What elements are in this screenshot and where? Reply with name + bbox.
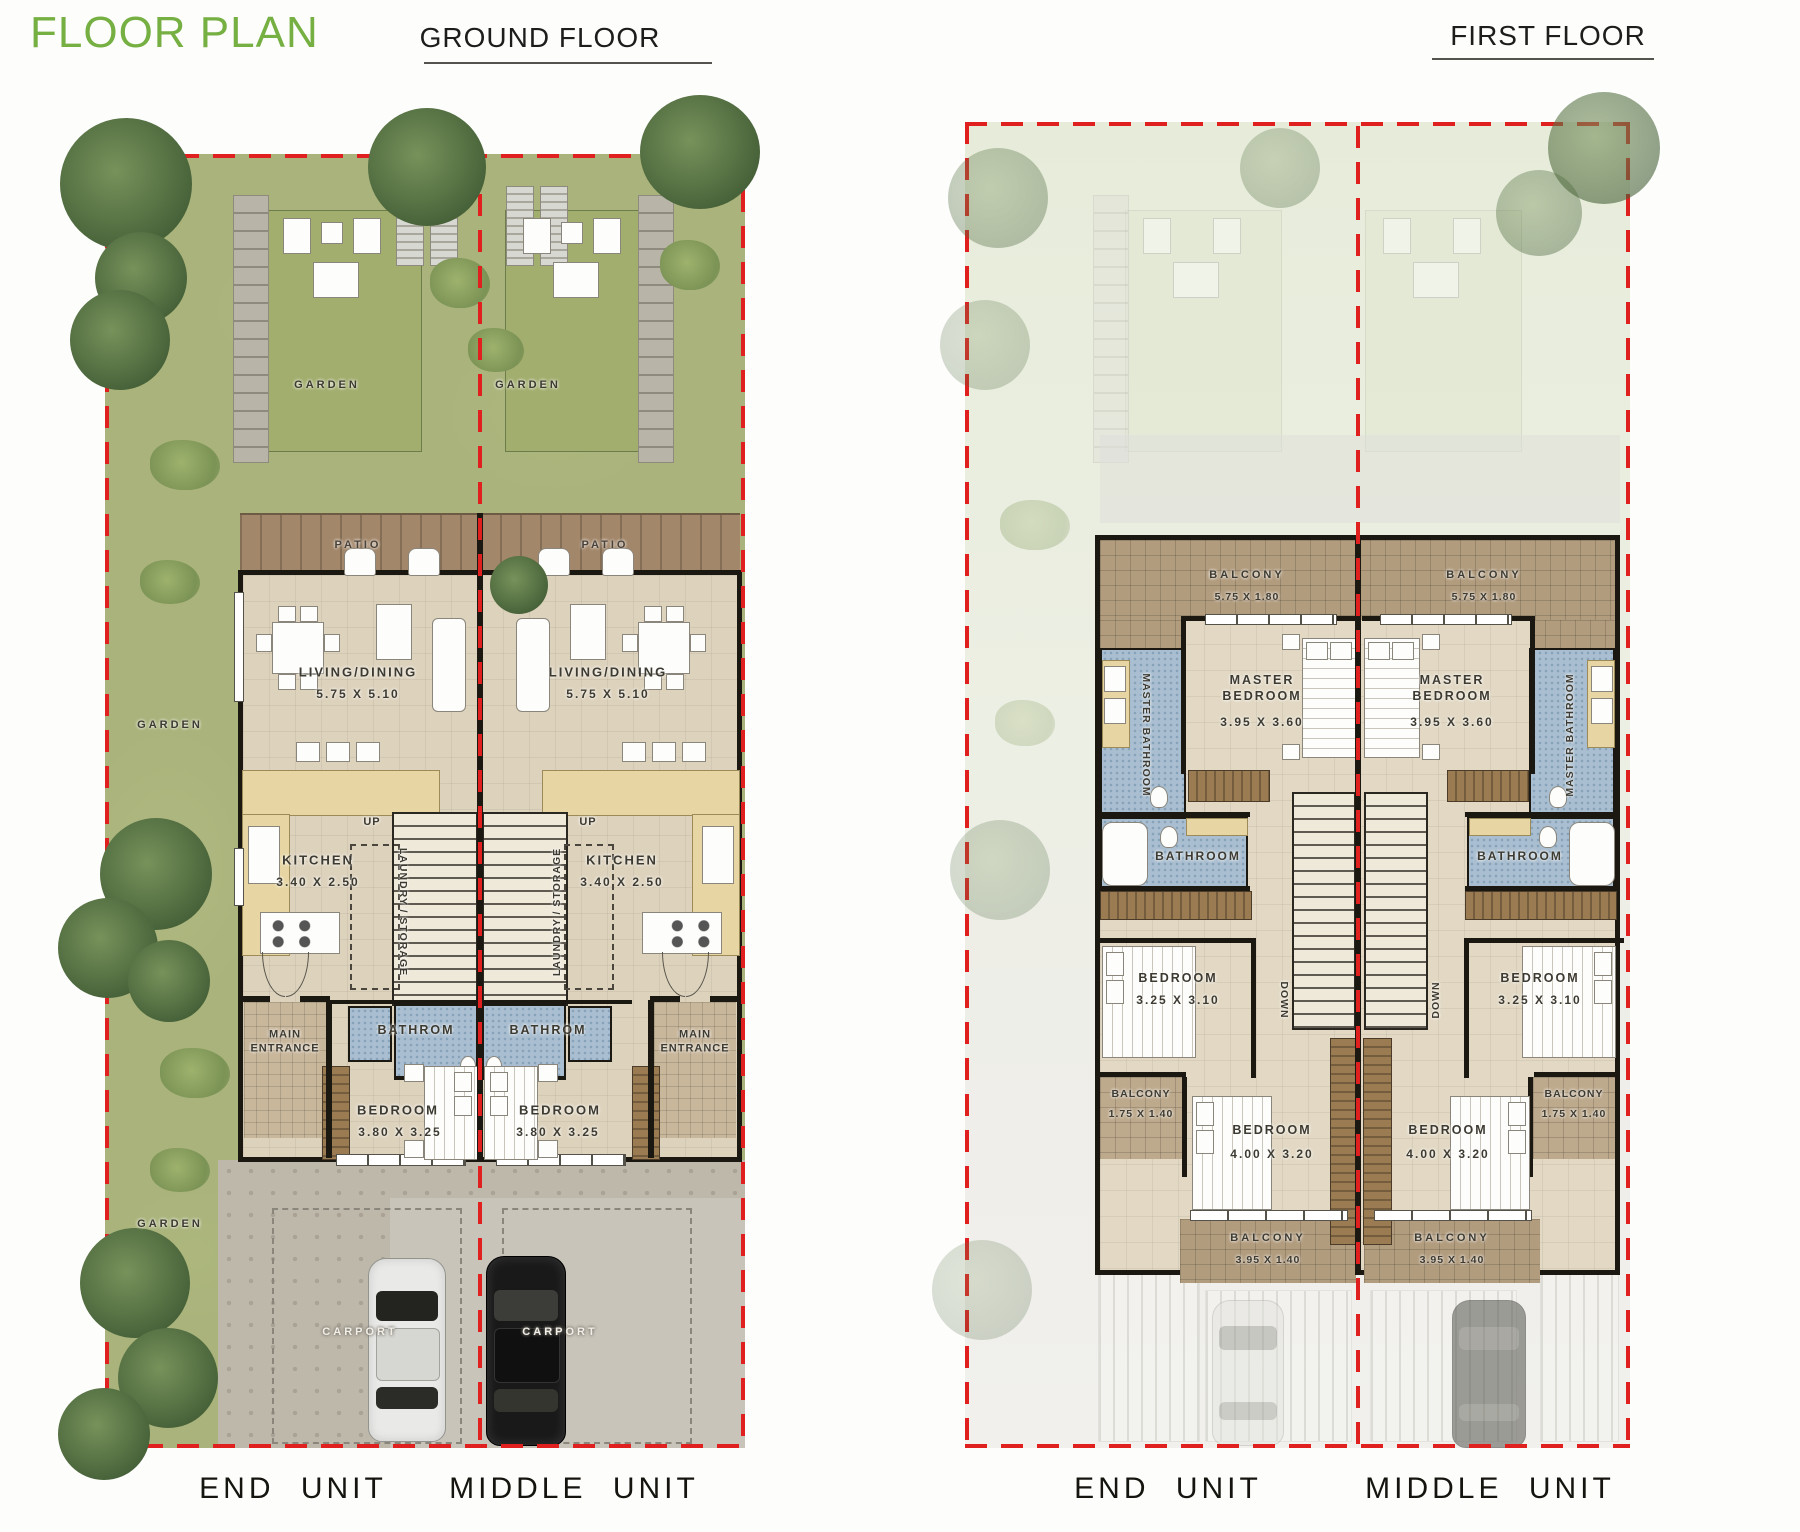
bush xyxy=(150,440,220,490)
kitchen-counter xyxy=(242,770,440,816)
ghost-bush xyxy=(1000,500,1070,550)
plot-border xyxy=(105,1444,745,1448)
window xyxy=(234,592,244,702)
room-dim-bedroom: 3.25 X 3.10 xyxy=(1136,993,1219,1007)
ghost-furniture xyxy=(1413,262,1459,298)
garden-label: GARDEN xyxy=(137,1218,203,1230)
room-dim-living: 5.75 X 5.10 xyxy=(566,687,649,701)
room-dim-side-balcony: 1.75 X 1.40 xyxy=(1542,1108,1607,1120)
ghost-furniture xyxy=(1213,218,1241,254)
wall xyxy=(1530,616,1535,774)
room-label-balcony: BALCONY xyxy=(1446,569,1521,581)
nightstand xyxy=(1282,634,1300,650)
lounge-chair xyxy=(283,218,311,254)
garden-label: GARDEN xyxy=(294,379,360,391)
pillow xyxy=(1368,642,1390,660)
room-dim-master-bedroom: 3.95 X 3.60 xyxy=(1220,715,1303,729)
tree xyxy=(128,940,210,1022)
ghost-walkway xyxy=(1093,195,1129,463)
carport-label: CARPORT xyxy=(522,1326,597,1338)
pillow xyxy=(1106,980,1124,1004)
pillow xyxy=(1196,1130,1214,1154)
bush xyxy=(468,328,524,372)
tree xyxy=(60,118,192,250)
nightstand xyxy=(404,1140,424,1158)
wall xyxy=(1096,938,1256,943)
room-label-master-bathroom: MASTER BATHROOM xyxy=(1564,673,1576,796)
wall xyxy=(482,1000,632,1004)
wall xyxy=(1251,938,1256,1078)
wall xyxy=(1182,1077,1187,1177)
dining-chair xyxy=(644,606,662,622)
tree xyxy=(58,1388,150,1480)
dining-chair xyxy=(622,634,638,652)
garden-walkway xyxy=(233,195,269,463)
plot-border xyxy=(741,154,745,1448)
ghost-patio xyxy=(1100,435,1620,523)
unit-label-end: END UNIT xyxy=(1074,1472,1262,1506)
wall xyxy=(300,996,330,1002)
pillow xyxy=(1330,642,1352,660)
toilet xyxy=(1150,786,1168,808)
room-dim-bedroom: 4.00 X 3.20 xyxy=(1406,1147,1489,1161)
room-label-master-bedroom: MASTER BEDROOM xyxy=(1397,672,1507,705)
plot-border xyxy=(965,122,1630,126)
room-label-bottom-balcony: BALCONY xyxy=(1230,1232,1305,1244)
room-dim-bedroom: 3.80 X 3.25 xyxy=(516,1125,599,1139)
wardrobe xyxy=(1447,770,1529,802)
room-label-bathroom: BATHROM xyxy=(510,1023,587,1037)
pillow xyxy=(1306,642,1328,660)
dining-chair xyxy=(278,606,296,622)
wardrobe xyxy=(1100,891,1252,920)
bar-stool xyxy=(296,742,320,762)
pillow xyxy=(454,1096,472,1116)
wall xyxy=(1464,938,1624,943)
carport-label: CARPORT xyxy=(322,1326,397,1338)
wall xyxy=(710,996,740,1002)
unit-label-middle: MIDDLE UNIT xyxy=(1365,1472,1615,1506)
room-label-bedroom: BEDROOM xyxy=(1232,1123,1311,1137)
wall xyxy=(1096,1072,1186,1077)
ghost-car-dark xyxy=(1452,1300,1526,1448)
wall xyxy=(648,1000,654,1158)
wall xyxy=(240,996,270,1002)
room-dim-kitchen: 3.40 X 2.50 xyxy=(276,875,359,889)
room-label-bedroom: BEDROOM xyxy=(519,1103,601,1118)
vanity xyxy=(1469,818,1531,836)
room-dim-living: 5.75 X 5.10 xyxy=(316,687,399,701)
pillow xyxy=(1508,1102,1526,1126)
nightstand xyxy=(1422,634,1440,650)
dining-chair xyxy=(666,674,684,690)
party-line-red xyxy=(1356,126,1360,1444)
side-table xyxy=(321,222,343,244)
ghost-tree xyxy=(948,148,1048,248)
wall xyxy=(1534,1072,1620,1077)
wardrobe xyxy=(1188,770,1270,802)
entrance-tile xyxy=(244,1002,326,1138)
ghost-tree xyxy=(950,820,1050,920)
room-label-entrance: MAIN ENTRANCE xyxy=(243,1028,327,1057)
toilet xyxy=(1539,826,1557,848)
wall xyxy=(1096,886,1250,891)
armchair xyxy=(344,548,376,576)
bush xyxy=(660,240,720,290)
first-floor-underline xyxy=(1432,58,1654,60)
shrub xyxy=(490,556,548,614)
tree xyxy=(368,108,486,226)
staircase-down xyxy=(1292,792,1356,1030)
garden-table xyxy=(553,262,599,298)
car-white xyxy=(368,1258,446,1442)
sink xyxy=(1104,698,1126,724)
wardrobe xyxy=(1465,891,1617,920)
room-label-bottom-balcony: BALCONY xyxy=(1414,1232,1489,1244)
kitchen-counter xyxy=(542,770,740,816)
ghost-furniture xyxy=(1143,218,1171,254)
side-table xyxy=(561,222,583,244)
laundry-label: LAUNDRY / STORAGE xyxy=(551,848,563,976)
dining-chair xyxy=(324,634,340,652)
nightstand xyxy=(538,1064,558,1082)
lounge-chair xyxy=(593,218,621,254)
ghost-tree xyxy=(940,300,1030,390)
armchair xyxy=(408,548,440,576)
unit-label-middle: MIDDLE UNIT xyxy=(449,1472,699,1506)
room-label-living: LIVING/DINING xyxy=(549,665,667,680)
nightstand xyxy=(404,1064,424,1082)
room-label-patio: PATIO xyxy=(335,539,382,551)
dining-chair xyxy=(300,606,318,622)
room-dim-kitchen: 3.40 X 2.50 xyxy=(580,875,663,889)
lounge-chair xyxy=(353,218,381,254)
wall xyxy=(326,1000,332,1158)
window xyxy=(234,848,244,906)
first-floor-heading: FIRST FLOOR xyxy=(1450,20,1646,52)
plot-border xyxy=(1626,122,1630,1448)
ground-floor-heading: GROUND FLOOR xyxy=(420,22,661,54)
room-dim-bedroom: 4.00 X 3.20 xyxy=(1230,1147,1313,1161)
room-label-kitchen: KITCHEN xyxy=(282,853,354,868)
window xyxy=(1190,1210,1348,1221)
ghost-furniture xyxy=(1453,218,1481,254)
room-dim-bedroom: 3.25 X 3.10 xyxy=(1498,993,1581,1007)
bar-stool xyxy=(622,742,646,762)
room-label-balcony: BALCONY xyxy=(1209,569,1284,581)
sofa xyxy=(516,618,550,712)
dining-chair xyxy=(690,634,706,652)
room-label-bedroom: BEDROOM xyxy=(1138,971,1217,985)
pillow xyxy=(490,1072,508,1092)
stairs-down-label: DOWN xyxy=(1278,981,1290,1018)
sink xyxy=(1591,698,1613,724)
bar-stool xyxy=(682,742,706,762)
room-label-patio: PATIO xyxy=(582,539,629,551)
plot-border xyxy=(965,1444,1630,1448)
pillow xyxy=(1196,1102,1214,1126)
ghost-tree xyxy=(1496,170,1582,256)
room-label-living: LIVING/DINING xyxy=(299,665,417,680)
room-label-bedroom: BEDROOM xyxy=(1408,1123,1487,1137)
room-label-side-balcony: BALCONY xyxy=(1112,1088,1171,1100)
laundry-storage-zone xyxy=(350,844,400,990)
pillow xyxy=(454,1072,472,1092)
stairs-up-label: UP xyxy=(579,816,596,828)
room-label-master-bathroom: MASTER BATHROOM xyxy=(1140,673,1152,796)
room-label-bedroom: BEDROOM xyxy=(1500,971,1579,985)
laundry-label: LAUNDRY / STORAGE xyxy=(397,848,409,976)
wall xyxy=(330,1000,478,1004)
window xyxy=(1374,1210,1532,1221)
lounge-chair xyxy=(523,218,551,254)
garden-table xyxy=(313,262,359,298)
pillow xyxy=(1594,980,1612,1004)
garden-label: GARDEN xyxy=(137,719,203,731)
room-label-bathroom: BATHROOM xyxy=(1477,849,1563,863)
stairs-down-label: DOWN xyxy=(1430,981,1442,1018)
tree xyxy=(70,290,170,390)
bush xyxy=(140,560,200,604)
dining-chair xyxy=(278,674,296,690)
kitchen-sink xyxy=(702,826,734,884)
wall xyxy=(1465,886,1619,891)
bathtub xyxy=(1102,822,1148,886)
room-label-entrance: MAIN ENTRANCE xyxy=(653,1028,737,1057)
nightstand xyxy=(1282,744,1300,760)
nightstand xyxy=(538,1140,558,1158)
room-dim-bottom-balcony: 3.95 X 1.40 xyxy=(1236,1254,1301,1266)
tree xyxy=(80,1228,190,1338)
garden-label: GARDEN xyxy=(495,379,561,391)
vanity xyxy=(1186,818,1248,836)
room-label-bathroom: BATHROOM xyxy=(1155,849,1241,863)
room-dim-bedroom: 3.80 X 3.25 xyxy=(358,1125,441,1139)
bathtub xyxy=(1569,822,1615,886)
coffee-table xyxy=(570,604,606,660)
car-black xyxy=(486,1256,566,1446)
room-label-master-bedroom: MASTER BEDROOM xyxy=(1207,672,1317,705)
toilet xyxy=(1160,826,1178,848)
ghost-car-white xyxy=(1212,1300,1284,1446)
window xyxy=(1205,614,1337,625)
tree xyxy=(640,95,760,209)
room-dim-balcony: 5.75 X 1.80 xyxy=(1452,591,1517,603)
nightstand xyxy=(1422,744,1440,760)
ghost-furniture xyxy=(1383,218,1411,254)
stairs-up-label: UP xyxy=(363,816,380,828)
armchair xyxy=(602,548,634,576)
pillow xyxy=(490,1096,508,1116)
entrance-tile xyxy=(654,1002,736,1138)
ghost-furniture xyxy=(1173,262,1219,298)
pillow xyxy=(1594,952,1612,976)
room-dim-bottom-balcony: 3.95 X 1.40 xyxy=(1420,1254,1485,1266)
garden-walkway xyxy=(638,195,674,463)
room-dim-balcony: 5.75 X 1.80 xyxy=(1215,591,1280,603)
room-label-bathroom: BATHROM xyxy=(378,1023,455,1037)
coffee-table xyxy=(376,604,412,660)
bush xyxy=(160,1048,230,1098)
pillow xyxy=(1106,952,1124,976)
floor-plan-sheet: FLOOR PLAN GROUND FLOOR FIRST FLOOR xyxy=(0,0,1800,1532)
sink xyxy=(1104,666,1126,692)
wall xyxy=(650,996,680,1002)
stove xyxy=(260,912,340,954)
wall xyxy=(1096,812,1250,817)
room-label-kitchen: KITCHEN xyxy=(586,853,658,868)
pillow xyxy=(1392,642,1414,660)
dining-chair xyxy=(666,606,684,622)
kitchen-sink xyxy=(248,826,280,884)
room-label-bedroom: BEDROOM xyxy=(357,1103,439,1118)
bar-stool xyxy=(326,742,350,762)
bush xyxy=(150,1148,210,1192)
pillow xyxy=(1508,1130,1526,1154)
wardrobe xyxy=(632,1066,660,1160)
patio-deck xyxy=(240,513,740,577)
dining-chair xyxy=(256,634,272,652)
wall xyxy=(1465,812,1619,817)
stove xyxy=(642,912,722,954)
staircase-down xyxy=(1364,792,1428,1030)
sofa xyxy=(432,618,466,712)
unit-label-end: END UNIT xyxy=(199,1472,387,1506)
wall xyxy=(1464,938,1469,1078)
ghost-tree xyxy=(932,1240,1032,1340)
window xyxy=(1380,614,1512,625)
party-line-red xyxy=(478,158,482,1448)
sink xyxy=(1591,666,1613,692)
room-dim-master-bedroom: 3.95 X 3.60 xyxy=(1410,715,1493,729)
ghost-tree xyxy=(1240,128,1320,208)
bar-stool xyxy=(356,742,380,762)
room-label-side-balcony: BALCONY xyxy=(1545,1088,1604,1100)
page-title: FLOOR PLAN xyxy=(30,8,319,58)
room-dim-side-balcony: 1.75 X 1.40 xyxy=(1109,1108,1174,1120)
bar-stool xyxy=(652,742,676,762)
ghost-bush xyxy=(995,700,1055,746)
ground-floor-underline xyxy=(424,62,712,64)
wall xyxy=(1181,616,1186,774)
